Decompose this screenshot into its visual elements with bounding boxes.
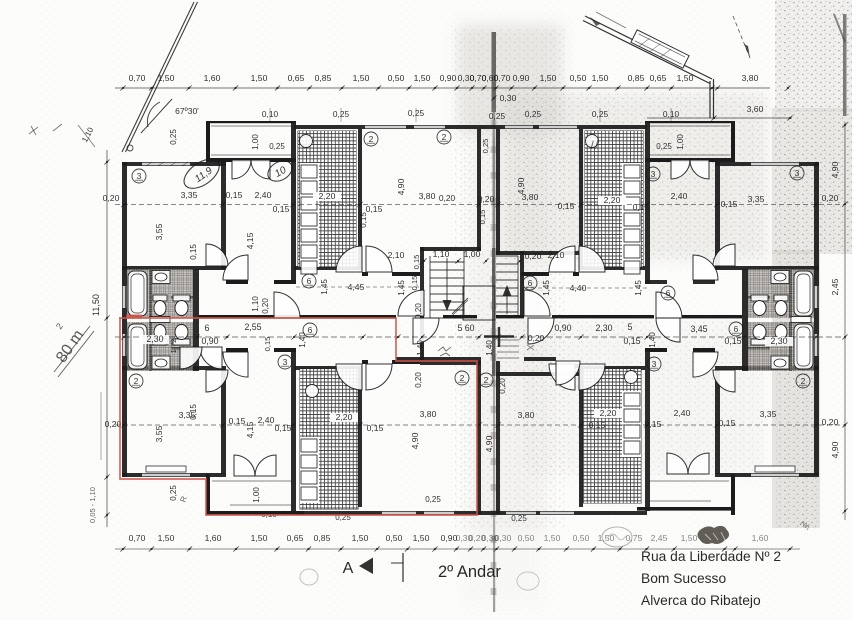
svg-text:6: 6 <box>666 288 671 298</box>
svg-text:1,10: 1,10 <box>251 296 260 312</box>
svg-text:4,15: 4,15 <box>245 232 255 249</box>
svg-text:1,60: 1,60 <box>204 73 221 83</box>
svg-text:0,20: 0,20 <box>528 333 545 343</box>
svg-text:1,50: 1,50 <box>353 73 370 83</box>
svg-text:0,85: 0,85 <box>628 73 645 83</box>
svg-text:0,15: 0,15 <box>366 204 383 214</box>
svg-text:0,20: 0,20 <box>439 193 456 203</box>
svg-text:0,15: 0,15 <box>359 212 368 228</box>
svg-text:0,15: 0,15 <box>367 423 384 433</box>
svg-text:0,85: 0,85 <box>314 533 331 543</box>
svg-text:1,50: 1,50 <box>158 533 175 543</box>
svg-text:2,45: 2,45 <box>830 278 840 295</box>
svg-text:0,20: 0,20 <box>105 419 122 429</box>
svg-text:4,15: 4,15 <box>245 421 255 438</box>
svg-text:6: 6 <box>528 278 533 288</box>
svg-text:3: 3 <box>652 359 657 369</box>
svg-text:3,60: 3,60 <box>747 104 764 114</box>
svg-text:3,80: 3,80 <box>419 191 436 201</box>
svg-text:2,40: 2,40 <box>671 191 688 201</box>
svg-text:0,20: 0,20 <box>478 194 495 204</box>
svg-text:3: 3 <box>651 169 656 179</box>
svg-text:0,65: 0,65 <box>287 533 304 543</box>
svg-text:0,15: 0,15 <box>589 420 606 430</box>
svg-text:0,70: 0,70 <box>494 73 511 83</box>
svg-text:0,15: 0,15 <box>273 204 290 214</box>
svg-text:2: 2 <box>134 376 139 386</box>
svg-text:3,45: 3,45 <box>690 324 707 334</box>
svg-text:0,20: 0,20 <box>525 251 542 261</box>
svg-text:0,15: 0,15 <box>623 336 640 346</box>
svg-text:6: 6 <box>734 324 739 334</box>
svg-text:2: 2 <box>460 373 465 383</box>
svg-text:0,15: 0,15 <box>633 202 650 212</box>
svg-text:0,50: 0,50 <box>570 73 587 83</box>
svg-text:2,55: 2,55 <box>244 322 261 332</box>
svg-text:0,15: 0,15 <box>275 423 292 433</box>
svg-text:0,15: 0,15 <box>721 199 738 209</box>
svg-text:0,15: 0,15 <box>724 336 741 346</box>
svg-text:4,90: 4,90 <box>410 432 420 449</box>
svg-text:2,40: 2,40 <box>258 415 275 425</box>
svg-text:0,65: 0,65 <box>650 73 667 83</box>
svg-text:3,55: 3,55 <box>154 223 164 240</box>
svg-text:4,40: 4,40 <box>570 283 587 293</box>
svg-text:1,40: 1,40 <box>416 340 425 356</box>
svg-text:0,25: 0,25 <box>511 514 527 523</box>
svg-text:6: 6 <box>205 323 210 333</box>
svg-text:0,20: 0,20 <box>414 372 423 388</box>
svg-text:0,90: 0,90 <box>201 336 218 346</box>
svg-text:0,25: 0,25 <box>425 495 441 504</box>
svg-text:0,65: 0,65 <box>288 73 305 83</box>
svg-text:0,50: 0,50 <box>518 533 535 543</box>
svg-text:2: 2 <box>484 375 489 385</box>
svg-text:1,50: 1,50 <box>251 533 268 543</box>
svg-text:0,15: 0,15 <box>410 276 419 291</box>
svg-text:1,50: 1,50 <box>544 533 561 543</box>
svg-text:0,90: 0,90 <box>513 73 530 83</box>
svg-text:0,15: 0,15 <box>189 244 198 260</box>
svg-text:2,10: 2,10 <box>388 250 405 260</box>
svg-text:11,50: 11,50 <box>91 294 101 316</box>
svg-text:0,15: 0,15 <box>645 419 662 429</box>
svg-text:0,30: 0,30 <box>495 533 512 543</box>
svg-text:1,40: 1,40 <box>485 340 494 356</box>
svg-text:0,15: 0,15 <box>189 404 198 420</box>
svg-text:2º Andar: 2º Andar <box>438 563 501 581</box>
svg-text:1,72: 1,72 <box>169 339 178 354</box>
svg-text:2: 2 <box>801 376 806 386</box>
svg-text:1,50: 1,50 <box>414 73 431 83</box>
svg-text:0,20: 0,20 <box>103 193 120 203</box>
svg-text:0,25: 0,25 <box>169 129 178 145</box>
svg-text:0,50: 0,50 <box>386 533 403 543</box>
svg-text:3,35: 3,35 <box>181 190 198 200</box>
svg-text:1,60: 1,60 <box>205 533 222 543</box>
svg-text:2,30: 2,30 <box>146 334 163 344</box>
svg-text:0,70: 0,70 <box>129 533 146 543</box>
svg-text:3,80: 3,80 <box>742 73 759 83</box>
svg-text:0,30: 0,30 <box>500 93 517 103</box>
svg-text:1,60: 1,60 <box>752 533 769 543</box>
svg-text:0,15: 0,15 <box>263 337 272 352</box>
svg-text:4,90: 4,90 <box>516 177 526 194</box>
svg-text:6: 6 <box>307 276 312 286</box>
svg-text:1,00: 1,00 <box>464 249 481 259</box>
svg-text:5: 5 <box>628 322 633 332</box>
svg-text:Alverca do Ribatejo: Alverca do Ribatejo <box>641 593 761 608</box>
svg-text:1,45: 1,45 <box>397 280 406 296</box>
svg-text:0,25: 0,25 <box>656 142 672 151</box>
svg-text:2: 2 <box>442 132 447 142</box>
svg-text:0,15: 0,15 <box>478 210 487 225</box>
svg-text:1,40: 1,40 <box>298 332 307 348</box>
svg-text:4,90: 4,90 <box>396 178 406 195</box>
svg-text:3,80: 3,80 <box>420 409 437 419</box>
svg-text:2: 2 <box>369 134 374 144</box>
svg-text:0,50: 0,50 <box>388 73 405 83</box>
svg-text:0,05 - 1,10: 0,05 - 1,10 <box>88 487 97 523</box>
svg-text:1,50: 1,50 <box>158 73 175 83</box>
svg-text:0,15: 0,15 <box>226 190 243 200</box>
svg-text:2,10: 2,10 <box>548 250 565 260</box>
svg-text:0,20: 0,20 <box>414 303 423 319</box>
svg-text:1,00: 1,00 <box>252 487 261 503</box>
svg-text:1,00: 1,00 <box>251 134 260 150</box>
svg-text:3: 3 <box>283 357 288 367</box>
svg-text:0,15: 0,15 <box>412 255 421 270</box>
svg-text:3,35: 3,35 <box>760 409 777 419</box>
svg-text:2,20: 2,20 <box>600 408 617 418</box>
svg-text:4,90: 4,90 <box>830 161 840 178</box>
svg-text:0,70: 0,70 <box>129 73 146 83</box>
svg-text:1,50: 1,50 <box>677 73 694 83</box>
svg-text:1,50: 1,50 <box>540 73 557 83</box>
svg-text:2,20: 2,20 <box>319 191 336 201</box>
svg-text:0,15: 0,15 <box>558 201 575 211</box>
svg-text:6: 6 <box>308 325 313 335</box>
svg-text:0,90: 0,90 <box>554 323 571 333</box>
svg-text:3,35: 3,35 <box>748 194 765 204</box>
svg-text:1,10: 1,10 <box>433 249 450 259</box>
svg-text:3,55: 3,55 <box>154 425 164 442</box>
svg-text:0,15: 0,15 <box>719 418 736 428</box>
svg-text:A: A <box>343 560 354 577</box>
svg-text:2,30: 2,30 <box>770 336 787 346</box>
svg-text:2,20: 2,20 <box>604 195 621 205</box>
svg-text:2,20: 2,20 <box>336 412 353 422</box>
svg-text:1,50: 1,50 <box>251 73 268 83</box>
svg-text:0,25: 0,25 <box>489 111 506 121</box>
svg-text:2,30: 2,30 <box>595 323 612 333</box>
svg-text:Bom Sucesso: Bom Sucesso <box>641 571 726 586</box>
svg-text:1,40: 1,40 <box>648 332 657 348</box>
svg-text:4,90: 4,90 <box>484 435 494 452</box>
svg-text:Rua da Liberdade Nº 2: Rua da Liberdade Nº 2 <box>641 549 781 564</box>
svg-text:0,50: 0,50 <box>573 533 590 543</box>
svg-text:0,75: 0,75 <box>626 533 643 543</box>
svg-text:0,25: 0,25 <box>269 142 285 151</box>
svg-text:1,50: 1,50 <box>592 73 609 83</box>
svg-text:2,40: 2,40 <box>255 190 272 200</box>
svg-text:0,15: 0,15 <box>229 416 246 426</box>
svg-text:0,20: 0,20 <box>261 298 270 314</box>
svg-text:0,20: 0,20 <box>498 378 507 394</box>
svg-text:0,25: 0,25 <box>481 139 490 154</box>
svg-text:3: 3 <box>137 171 142 181</box>
svg-text:67º30': 67º30' <box>175 106 199 116</box>
svg-text:5 60: 5 60 <box>457 323 474 333</box>
svg-text:3: 3 <box>795 168 800 178</box>
svg-text:0,90: 0,90 <box>440 73 457 83</box>
svg-text:0,25: 0,25 <box>169 485 178 501</box>
svg-text:2,40: 2,40 <box>674 408 691 418</box>
svg-text:1,50: 1,50 <box>352 533 369 543</box>
svg-text:0,20: 0,20 <box>822 417 839 427</box>
svg-text:1,00: 1,00 <box>676 134 685 150</box>
svg-text:0,20: 0,20 <box>822 193 839 203</box>
svg-text:0,25: 0,25 <box>525 109 542 119</box>
svg-text:4,90: 4,90 <box>830 441 840 458</box>
svg-text:1,50: 1,50 <box>681 533 698 543</box>
svg-text:1,50: 1,50 <box>413 533 430 543</box>
svg-text:0,85: 0,85 <box>315 73 332 83</box>
svg-text:2,45: 2,45 <box>651 533 668 543</box>
svg-text:3,80: 3,80 <box>518 410 535 420</box>
